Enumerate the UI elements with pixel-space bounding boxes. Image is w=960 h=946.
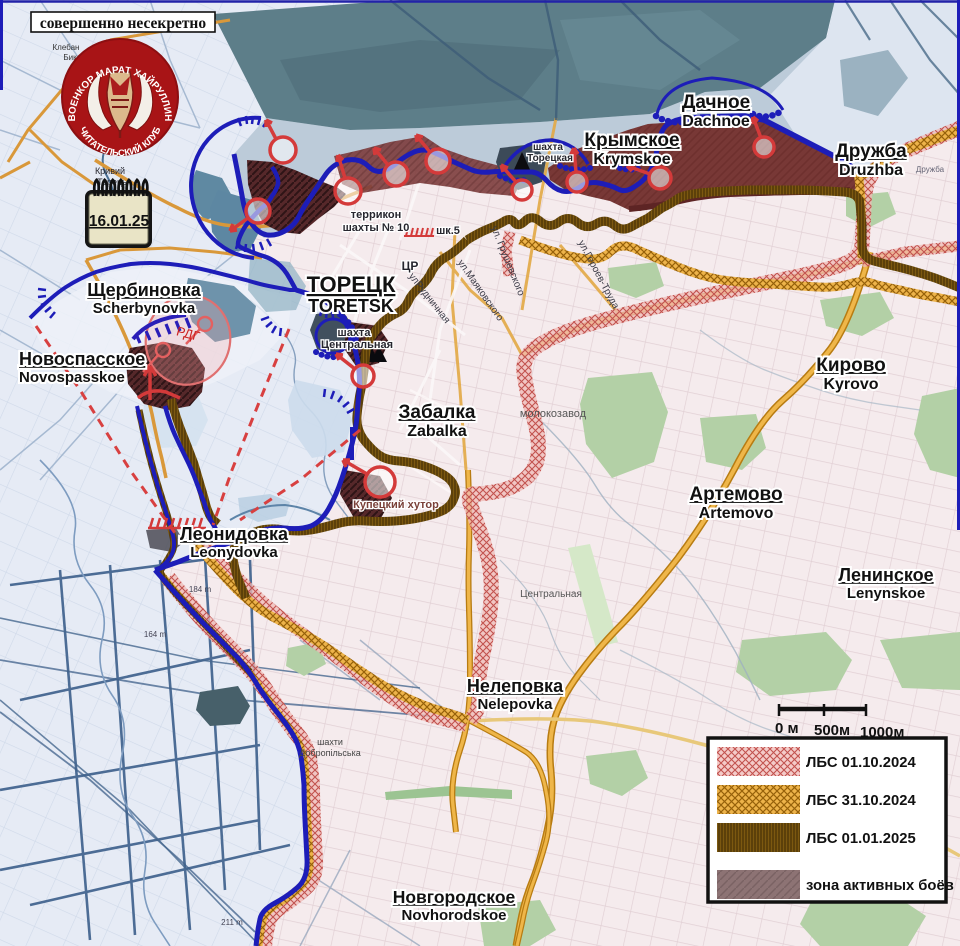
svg-text:Клебан: Клебан bbox=[53, 43, 80, 52]
svg-text:шахты № 10: шахты № 10 bbox=[343, 222, 410, 234]
svg-text:Artemovo: Artemovo bbox=[699, 505, 774, 522]
svg-text:шахта: шахта bbox=[533, 142, 563, 153]
svg-text:Druzhba: Druzhba bbox=[839, 162, 903, 179]
svg-text:террикон: террикон bbox=[351, 209, 401, 221]
svg-text:Novhorodskoe: Novhorodskoe bbox=[401, 907, 506, 924]
svg-text:ЛБС 01.10.2024: ЛБС 01.10.2024 bbox=[806, 755, 916, 771]
svg-text:совершенно несекретно: совершенно несекретно bbox=[40, 15, 206, 32]
svg-text:TORETSK: TORETSK bbox=[308, 296, 394, 316]
svg-text:ЛБС 01.01.2025: ЛБС 01.01.2025 bbox=[806, 831, 916, 847]
svg-text:ЦР: ЦР bbox=[402, 259, 419, 273]
svg-text:Ленинское: Ленинское bbox=[838, 565, 933, 585]
svg-text:184 m: 184 m bbox=[189, 585, 212, 594]
svg-text:Дачное: Дачное bbox=[682, 92, 750, 113]
svg-text:Дружба: Дружба bbox=[835, 141, 907, 162]
svg-text:Купецкий хутор: Купецкий хутор bbox=[353, 499, 439, 511]
svg-text:16.01.25: 16.01.25 bbox=[89, 213, 150, 230]
svg-text:Дружба: Дружба bbox=[916, 165, 945, 174]
svg-text:ЛБС 31.10.2024: ЛБС 31.10.2024 bbox=[806, 793, 916, 809]
svg-text:шахта: шахта bbox=[338, 327, 372, 339]
svg-text:шк.5: шк.5 bbox=[436, 225, 460, 237]
svg-text:Щербиновка: Щербиновка bbox=[87, 280, 201, 300]
svg-text:211 m: 211 m bbox=[221, 918, 243, 927]
svg-text:Кривий: Кривий bbox=[95, 166, 125, 176]
svg-text:зона активных боёв: зона активных боёв bbox=[806, 878, 954, 894]
svg-text:Леонидовка: Леонидовка bbox=[180, 524, 289, 544]
svg-text:Торецкая: Торецкая bbox=[527, 153, 573, 164]
svg-text:шахти: шахти bbox=[317, 737, 343, 747]
svg-text:Забалка: Забалка bbox=[399, 402, 476, 423]
svg-text:Zabalka: Zabalka bbox=[407, 423, 467, 440]
svg-text:Добропільська: Добропільська bbox=[299, 748, 361, 758]
svg-text:молокозавод: молокозавод bbox=[520, 408, 587, 420]
svg-text:Leonydovka: Leonydovka bbox=[190, 544, 278, 561]
svg-text:Центральная: Центральная bbox=[520, 589, 582, 600]
svg-text:Нелеповка: Нелеповка bbox=[467, 676, 564, 696]
svg-text:Novospasskoe: Novospasskoe bbox=[19, 369, 125, 386]
svg-text:Kyrovo: Kyrovo bbox=[823, 376, 878, 393]
svg-text:Новгородское: Новгородское bbox=[393, 887, 516, 907]
svg-text:Dachnoe: Dachnoe bbox=[682, 113, 750, 130]
svg-text:Артемово: Артемово bbox=[689, 484, 782, 505]
svg-text:ТОРЕЦК: ТОРЕЦК bbox=[307, 272, 396, 297]
svg-text:0 м: 0 м bbox=[775, 720, 799, 737]
svg-text:164 m: 164 m bbox=[144, 630, 167, 639]
svg-text:Новоспасское: Новоспасское bbox=[19, 349, 145, 369]
svg-text:Крымское: Крымское bbox=[584, 130, 679, 151]
svg-text:Кирово: Кирово bbox=[816, 355, 886, 376]
svg-text:Krymskoe: Krymskoe bbox=[593, 151, 670, 168]
svg-text:Nelepovka: Nelepovka bbox=[477, 696, 553, 713]
svg-text:Центральная: Центральная bbox=[321, 339, 393, 351]
svg-text:Lenynskoe: Lenynskoe bbox=[847, 585, 925, 602]
svg-text:Scherbynovka: Scherbynovka bbox=[93, 300, 196, 317]
